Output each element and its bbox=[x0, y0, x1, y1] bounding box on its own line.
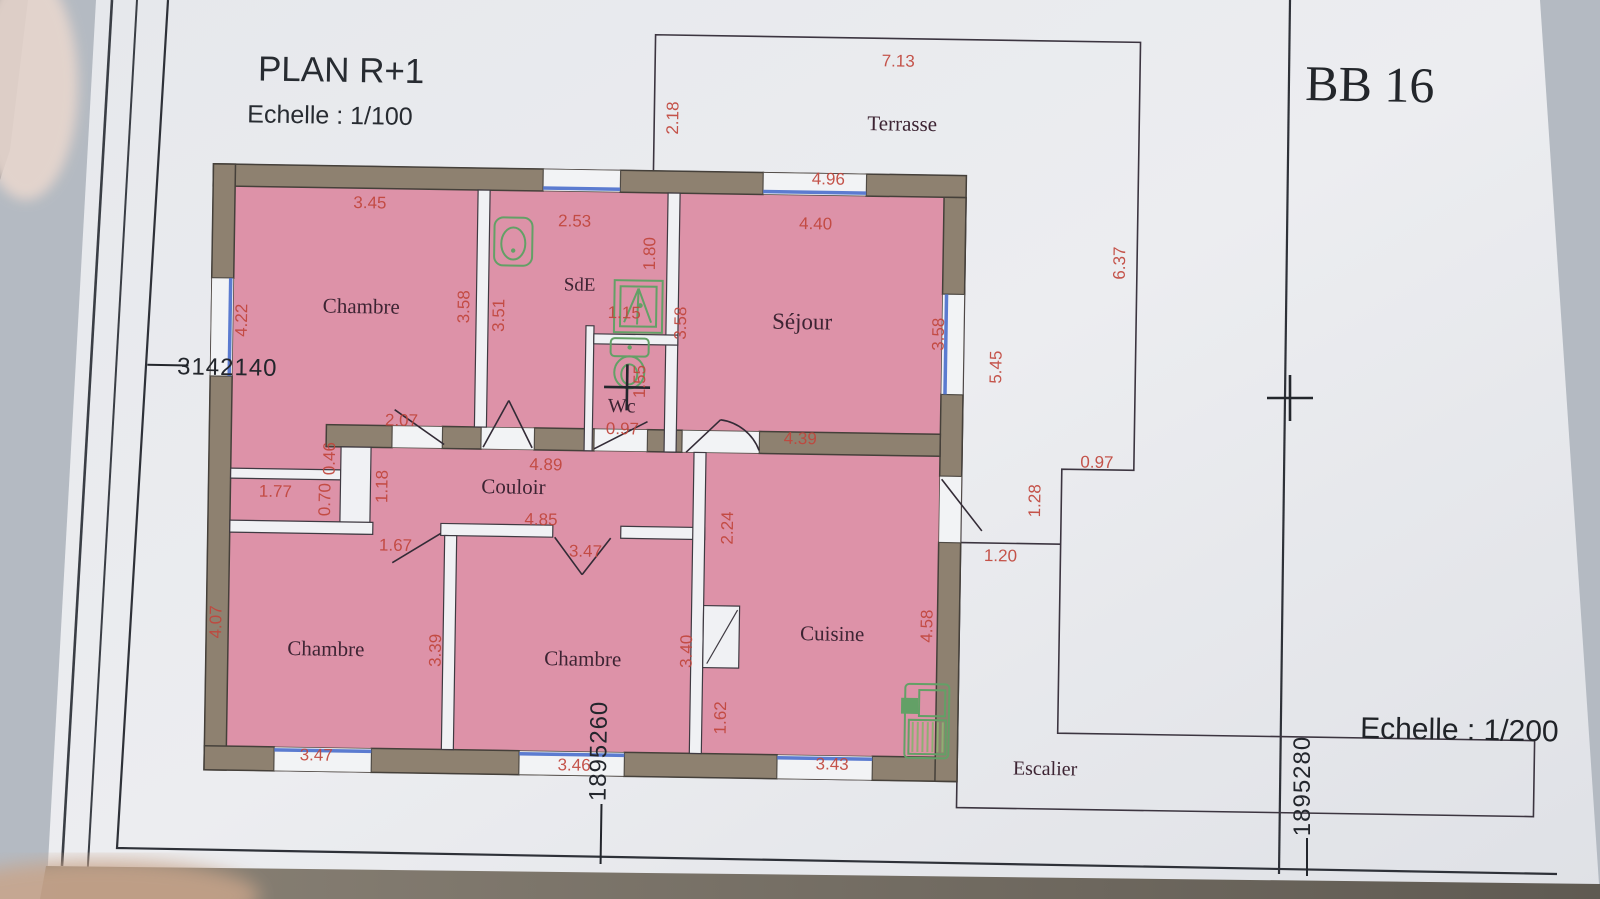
room-label: Terrasse bbox=[867, 111, 937, 136]
floor-plan-photo: 3142140 1895260 PLAN R+1 Echelle : 1/100… bbox=[0, 0, 1600, 899]
dimension-label: 3.58 bbox=[454, 290, 474, 323]
dimension-label: 3.51 bbox=[489, 299, 509, 332]
room-label: Séjour bbox=[772, 309, 833, 335]
sheet-reference: BB 16 bbox=[1305, 55, 1435, 113]
dimension-label: 4.96 bbox=[812, 169, 845, 189]
dimension-label: 0.70 bbox=[315, 483, 335, 516]
room-label: Chambre bbox=[323, 294, 400, 319]
dimension-label: 4.89 bbox=[529, 455, 562, 475]
dimension-label: 3.40 bbox=[677, 635, 697, 668]
dimension-label: 2.18 bbox=[663, 101, 683, 134]
room-label: Couloir bbox=[481, 474, 546, 499]
dimension-label: 3.46 bbox=[557, 755, 590, 775]
dimension-label: 0.97 bbox=[606, 419, 639, 439]
room-label: Chambre bbox=[287, 636, 364, 661]
grid-y-coordinate: 1895280 bbox=[1289, 736, 1316, 836]
grid-x-coordinate: 3142140 bbox=[177, 353, 278, 382]
scale-label-2: Echelle : 1/200 bbox=[1360, 712, 1559, 748]
dimension-label: 3.39 bbox=[426, 634, 446, 667]
dimension-label: 2.53 bbox=[558, 211, 591, 231]
dimension-label: 0.46 bbox=[320, 442, 340, 475]
dimension-label: 4.22 bbox=[232, 304, 252, 337]
room-label: Chambre bbox=[544, 646, 621, 671]
dimension-label: 1.28 bbox=[1025, 484, 1045, 517]
dimension-label: 4.39 bbox=[784, 429, 817, 449]
dimension-label: 5.45 bbox=[986, 350, 1006, 383]
dimension-label: 4.40 bbox=[799, 214, 832, 234]
dimension-label: 7.13 bbox=[882, 51, 915, 71]
window-glazing bbox=[543, 188, 620, 189]
dimension-label: 1.15 bbox=[608, 303, 641, 323]
dimension-label: 0.97 bbox=[1080, 452, 1113, 472]
room-label: Escalier bbox=[1013, 757, 1078, 780]
dimension-label: 3.58 bbox=[671, 306, 691, 339]
dimension-label: 4.58 bbox=[917, 609, 937, 642]
dimension-label: 3.45 bbox=[353, 193, 386, 213]
dimension-label: 3.58 bbox=[929, 318, 949, 351]
dimension-label: 1.18 bbox=[372, 470, 392, 503]
dimension-label: 1.55 bbox=[630, 365, 650, 398]
grid-y-coordinate: 1895260 bbox=[585, 701, 614, 802]
dimension-label: 3.43 bbox=[815, 754, 848, 774]
dimension-label: 6.37 bbox=[1110, 246, 1130, 279]
page-title: PLAN R+1 bbox=[258, 50, 425, 92]
grid-tick bbox=[147, 365, 188, 366]
dimension-label: 2.24 bbox=[718, 511, 738, 544]
room-label: Cuisine bbox=[800, 621, 865, 646]
dimension-label: 4.07 bbox=[206, 605, 226, 638]
dimension-label: 3.47 bbox=[569, 541, 602, 561]
dimension-label: 1.20 bbox=[984, 546, 1017, 566]
dimension-label: 1.80 bbox=[640, 237, 660, 270]
dimension-label: 1.77 bbox=[259, 482, 292, 502]
dimension-label: 2.07 bbox=[385, 411, 418, 431]
dimension-label: 1.67 bbox=[379, 535, 412, 555]
dimension-label: 3.47 bbox=[300, 745, 333, 765]
scale-label: Echelle : 1/100 bbox=[247, 100, 413, 131]
room-label: SdE bbox=[564, 274, 596, 295]
window-glazing bbox=[763, 191, 866, 193]
grid-tick bbox=[601, 804, 602, 864]
dimension-label: 1.62 bbox=[711, 701, 731, 734]
dimension-label: 4.85 bbox=[524, 510, 557, 530]
